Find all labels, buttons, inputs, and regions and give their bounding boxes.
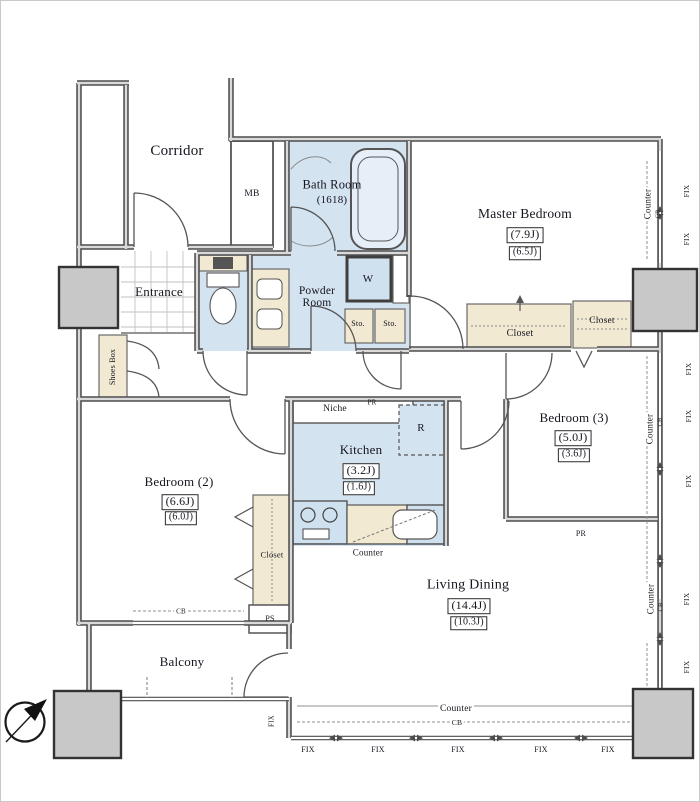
room-size-bedroom3-1: (5.0J): [555, 430, 592, 446]
room-label-bedroom2: Bedroom (2): [145, 475, 214, 489]
cb-label-living-right: CB: [659, 602, 666, 611]
counter-label-master-right: Counter: [643, 187, 652, 221]
room-label-entrance: Entrance: [135, 285, 183, 299]
counter-label-living: Counter: [438, 705, 474, 715]
cb-label-living: CB: [450, 719, 464, 727]
sto-label-1: Sto.: [351, 320, 364, 328]
floorplan: Corridor MB Bath Room (1618) Master Bedr…: [0, 0, 700, 802]
shoes-box-label: Shoes Box: [109, 349, 117, 385]
fix-label-bottom-5: FIX: [601, 746, 615, 754]
sto-label-2: Sto.: [383, 320, 396, 328]
room-label-master: Master Bedroom: [478, 207, 572, 221]
fix-label-bottom-2: FIX: [371, 746, 385, 754]
room-size-living-1: (14.4J): [447, 598, 490, 614]
closet-label-master-1: Closet: [507, 329, 534, 340]
fix-label-right-2: FIX: [683, 233, 691, 246]
pr-label-bedroom3: PR: [576, 530, 586, 538]
closet-label-bedroom2: Closet: [261, 551, 284, 560]
room-size-bath: (1618): [317, 195, 348, 207]
room-size-master-1: (7.9J): [507, 227, 544, 243]
fix-label-right-7: FIX: [683, 661, 691, 674]
fix-label-balcony: FIX: [268, 715, 275, 727]
fix-label-right-1: FIX: [683, 185, 691, 198]
room-size-bedroom2-1: (6.6J): [162, 494, 199, 510]
fix-label-right-6: FIX: [683, 593, 691, 606]
ps-label: PS: [265, 615, 274, 623]
cb-label-bedroom2: CB: [174, 608, 188, 615]
room-label-powder: Powder Room: [286, 285, 348, 309]
fix-label-bottom-3: FIX: [451, 746, 465, 754]
mb-label: MB: [244, 190, 259, 200]
counter-label-bedroom3-right: Counter: [645, 412, 654, 446]
room-label-balcony: Balcony: [160, 655, 205, 669]
niche-label: Niche: [323, 405, 347, 415]
room-label-kitchen: Kitchen: [340, 443, 383, 457]
room-label-corridor: Corridor: [150, 144, 203, 160]
closet-label-master-2: Closet: [589, 317, 614, 327]
refrigerator-label: R: [417, 423, 425, 435]
washer-label: W: [363, 274, 374, 286]
room-size-master-2: (6.5J): [509, 246, 541, 260]
fix-label-right-4: FIX: [685, 410, 693, 423]
fix-label-right-3: FIX: [685, 363, 693, 376]
fix-label-bottom-1: FIX: [301, 746, 315, 754]
room-size-kitchen-2: (1.6J): [343, 481, 375, 495]
cb-label-master-right: CB: [656, 209, 663, 218]
room-size-bedroom3-2: (3.6J): [558, 448, 590, 462]
north-compass-icon: [6, 699, 48, 742]
counter-label-living-right: Counter: [646, 582, 655, 616]
fix-label-bottom-4: FIX: [534, 746, 548, 754]
counter-label-kitchen: Counter: [353, 548, 383, 557]
room-size-living-2: (10.3J): [450, 616, 487, 630]
floorplan-drawing: [1, 1, 699, 801]
room-size-kitchen-1: (3.2J): [343, 463, 380, 479]
room-label-bedroom3: Bedroom (3): [540, 411, 609, 425]
room-size-bedroom2-2: (6.0J): [165, 511, 197, 525]
pr-label-niche: PR: [368, 399, 377, 406]
fix-label-right-5: FIX: [685, 475, 693, 488]
cb-label-bedroom3-right: CB: [658, 417, 665, 426]
room-label-living: Living Dining: [427, 579, 509, 594]
room-label-bath: Bath Room: [302, 178, 361, 191]
